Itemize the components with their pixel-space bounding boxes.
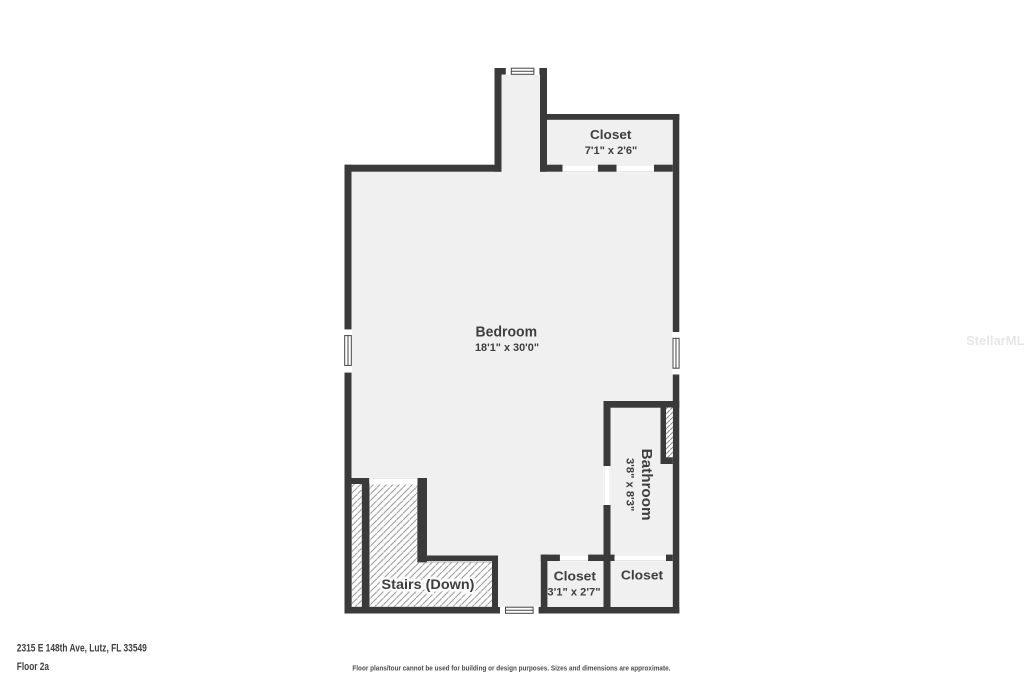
svg-text:Closet: Closet	[590, 128, 632, 142]
svg-text:Bedroom: Bedroom	[476, 325, 538, 341]
svg-text:Closet: Closet	[554, 568, 597, 583]
svg-text:3'1" x 2'7": 3'1" x 2'7"	[547, 587, 600, 599]
svg-text:Closet: Closet	[621, 568, 664, 583]
svg-text:3'8" x 8'3": 3'8" x 8'3"	[624, 458, 636, 511]
svg-text:18'1" x 30'0": 18'1" x 30'0"	[475, 342, 539, 354]
svg-text:2315 E 148th Ave, Lutz, FL 335: 2315 E 148th Ave, Lutz, FL 33549	[17, 643, 147, 655]
svg-text:StellarMLS: StellarMLS	[966, 333, 1024, 348]
svg-text:Bathroom: Bathroom	[638, 449, 654, 521]
svg-text:Floor 2a: Floor 2a	[17, 661, 50, 673]
svg-text:Stairs (Down): Stairs (Down)	[382, 576, 475, 592]
svg-text:Floor plans/tour cannot be use: Floor plans/tour cannot be used for buil…	[352, 666, 670, 673]
svg-text:7'1" x 2'6": 7'1" x 2'6"	[585, 145, 638, 157]
